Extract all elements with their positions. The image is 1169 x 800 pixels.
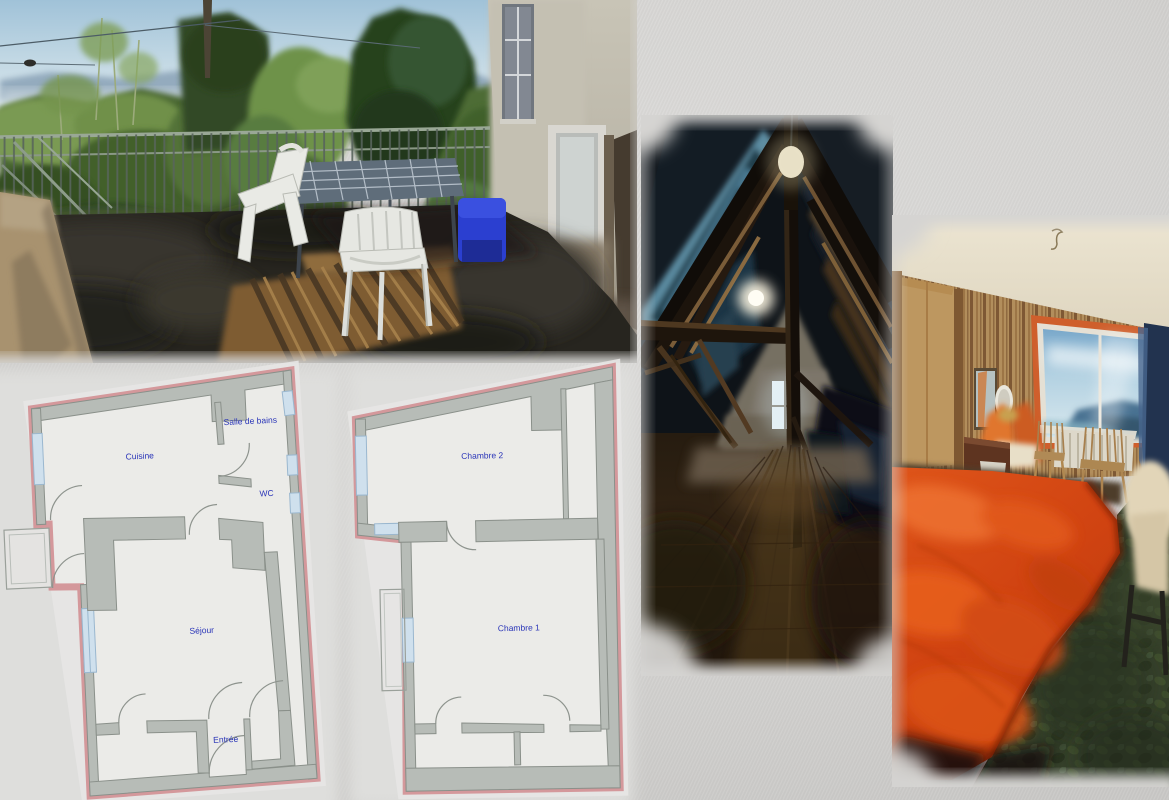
svg-text:Entrée: Entrée <box>213 734 239 745</box>
svg-text:Séjour: Séjour <box>189 625 214 636</box>
svg-text:Chambre 2: Chambre 2 <box>461 450 504 461</box>
svg-text:Cuisine: Cuisine <box>125 450 154 461</box>
svg-text:WC: WC <box>259 488 274 499</box>
svg-text:Chambre 1: Chambre 1 <box>498 622 541 633</box>
